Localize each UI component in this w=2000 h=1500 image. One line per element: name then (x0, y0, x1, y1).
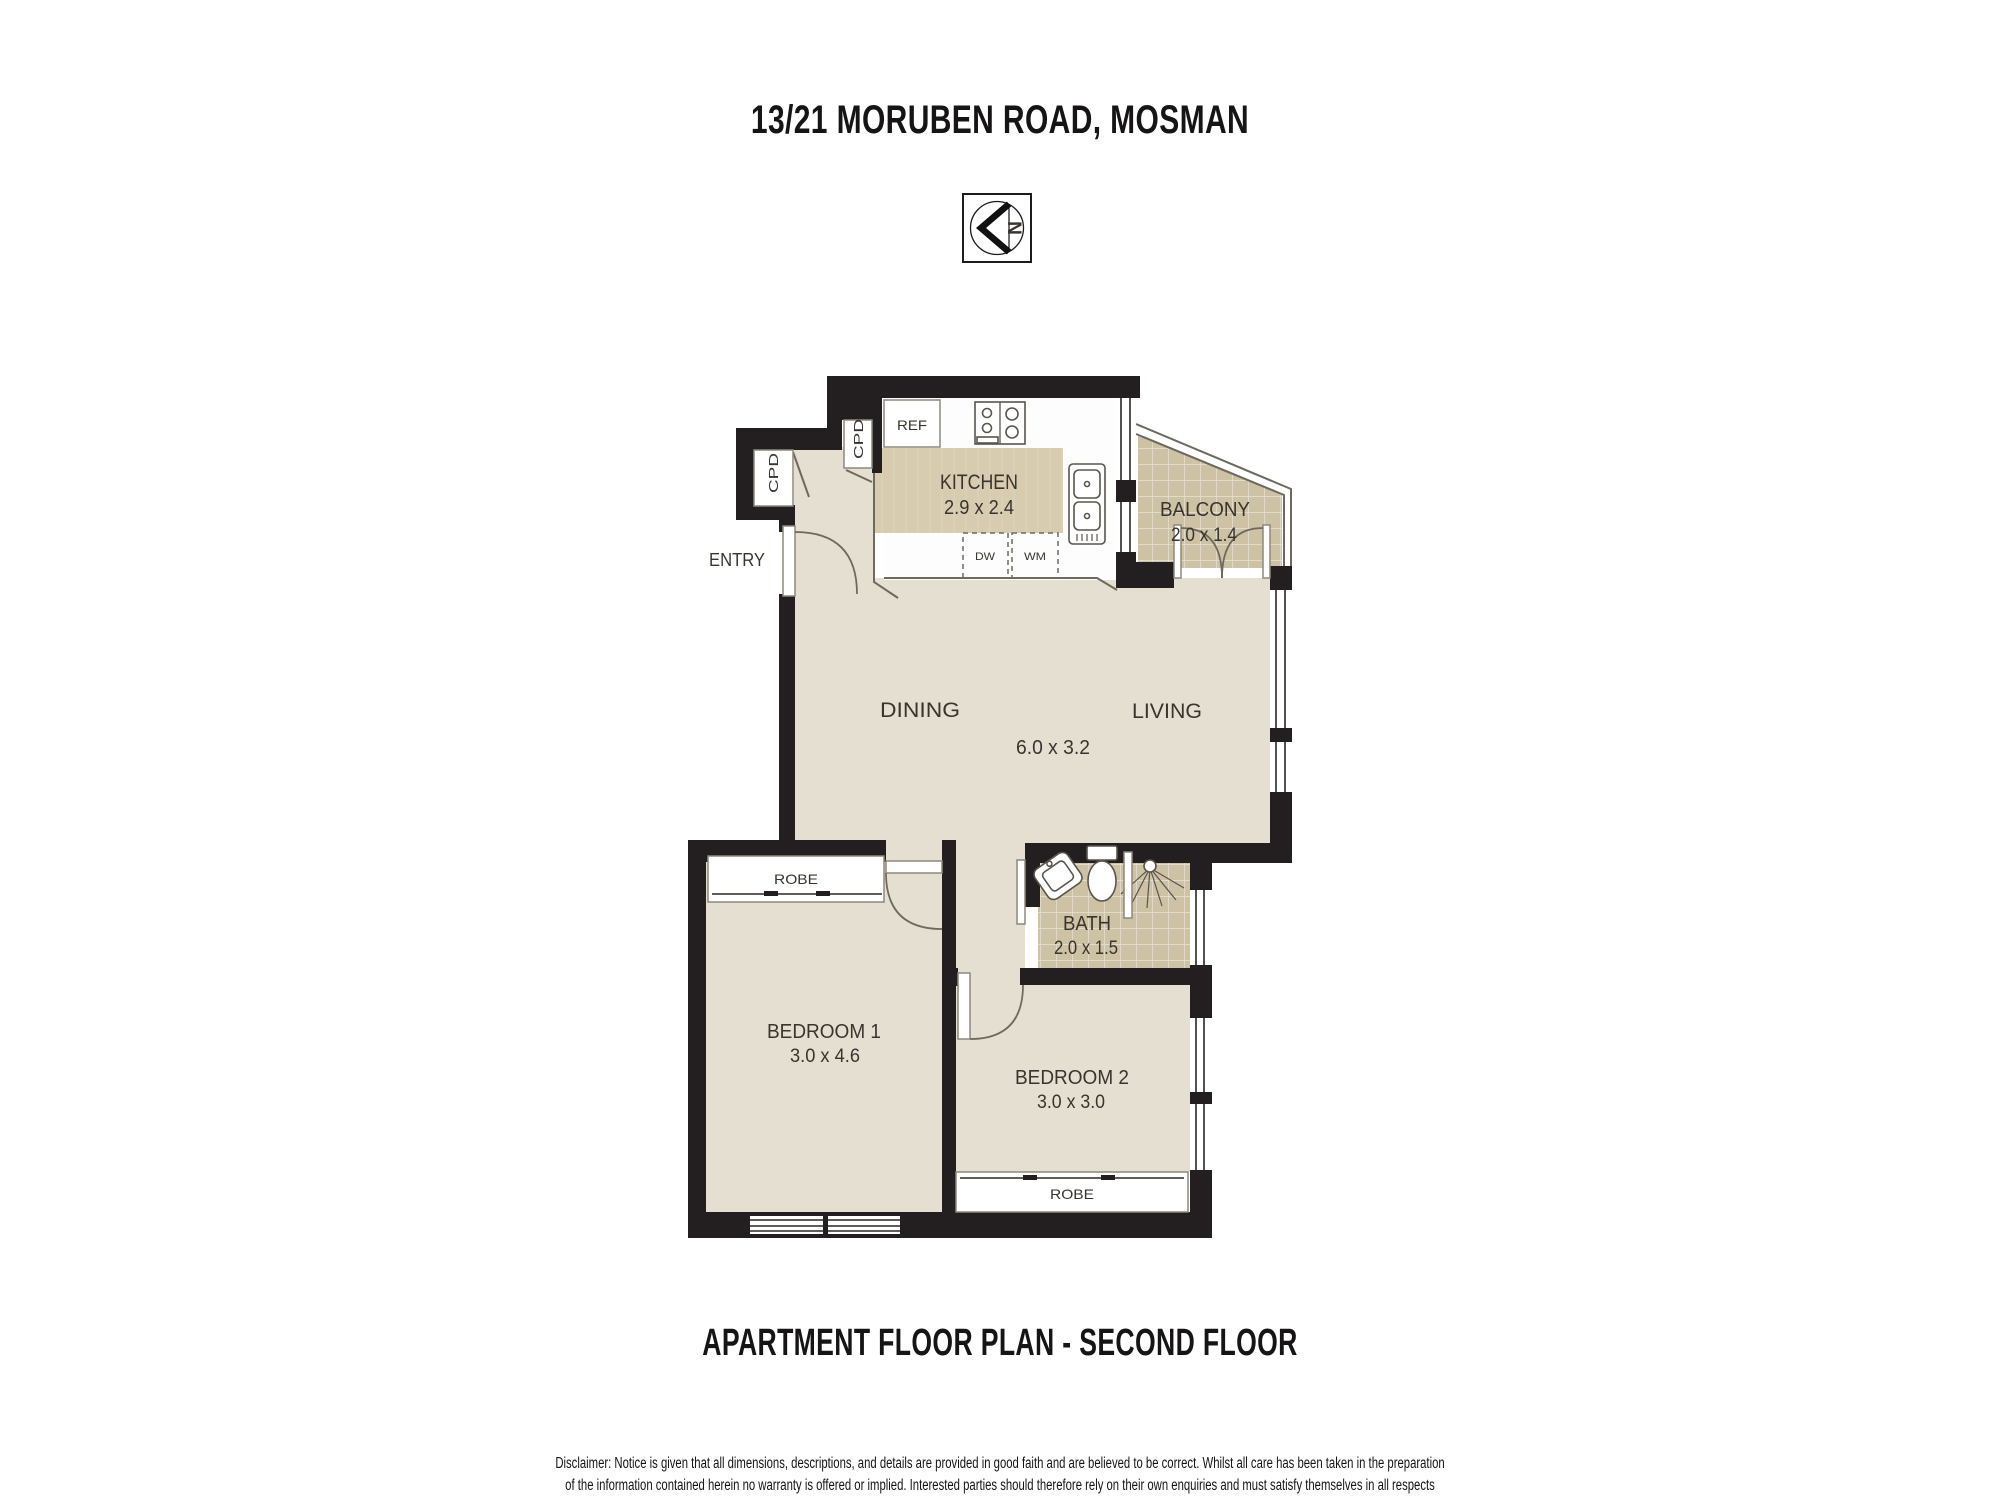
balcony-label: BALCONY (1160, 499, 1250, 521)
hallway-floor (956, 843, 1025, 985)
floor-plan-canvas: N (0, 0, 2000, 1500)
living-label: LIVING (1132, 700, 1202, 723)
north-compass-icon: N (963, 194, 1031, 262)
ref-label: REF (897, 417, 927, 433)
compass-north-letter: N (1003, 221, 1024, 235)
disclaimer-line1: Disclaimer: Notice is given that all dim… (270, 1455, 1730, 1473)
bedroom1-dims: 3.0 x 4.6 (790, 1046, 860, 1067)
dining-label: DINING (880, 699, 960, 722)
balcony-dims: 2.0 x 1.4 (1171, 525, 1237, 546)
bedroom1-label: BEDROOM 1 (767, 1021, 881, 1043)
kitchen-dims: 2.9 x 2.4 (944, 497, 1014, 519)
entry-vestibule-floor (794, 447, 874, 600)
toilet-icon (1087, 846, 1117, 901)
washing-machine-label: WM (1024, 551, 1046, 563)
entry-label: ENTRY (709, 550, 765, 570)
plan-caption: APARTMENT FLOOR PLAN - SECOND FLOOR (300, 1322, 1700, 1365)
sink-icon (1069, 464, 1105, 544)
robe-bedroom2-label: ROBE (1050, 1186, 1094, 1202)
kitchen-window (1116, 398, 1136, 552)
bath-label: BATH (1063, 913, 1111, 935)
floorplan-page: { "title": "13/21 MORUBEN ROAD, MOSMAN",… (0, 0, 2000, 1500)
dishwasher-label: DW (975, 551, 996, 563)
living-dining-dims: 6.0 x 3.2 (1016, 737, 1090, 759)
bedroom2-dims: 3.0 x 3.0 (1037, 1092, 1105, 1113)
disclaimer-line2: of the information contained herein no w… (270, 1477, 1730, 1495)
bath-dims: 2.0 x 1.5 (1054, 938, 1118, 959)
cooktop-icon (975, 402, 1025, 444)
shower-screen (1124, 852, 1132, 918)
robe-bedroom1-label: ROBE (774, 871, 818, 887)
cpd-kitchen-label: CPD (851, 419, 866, 459)
bath-window (1190, 890, 1212, 965)
cpd-entry-label: CPD (766, 453, 781, 493)
kitchen-label: KITCHEN (940, 471, 1018, 494)
living-windows (1270, 590, 1292, 792)
bath-door (1017, 860, 1025, 924)
bedroom2-label: BEDROOM 2 (1015, 1067, 1129, 1089)
